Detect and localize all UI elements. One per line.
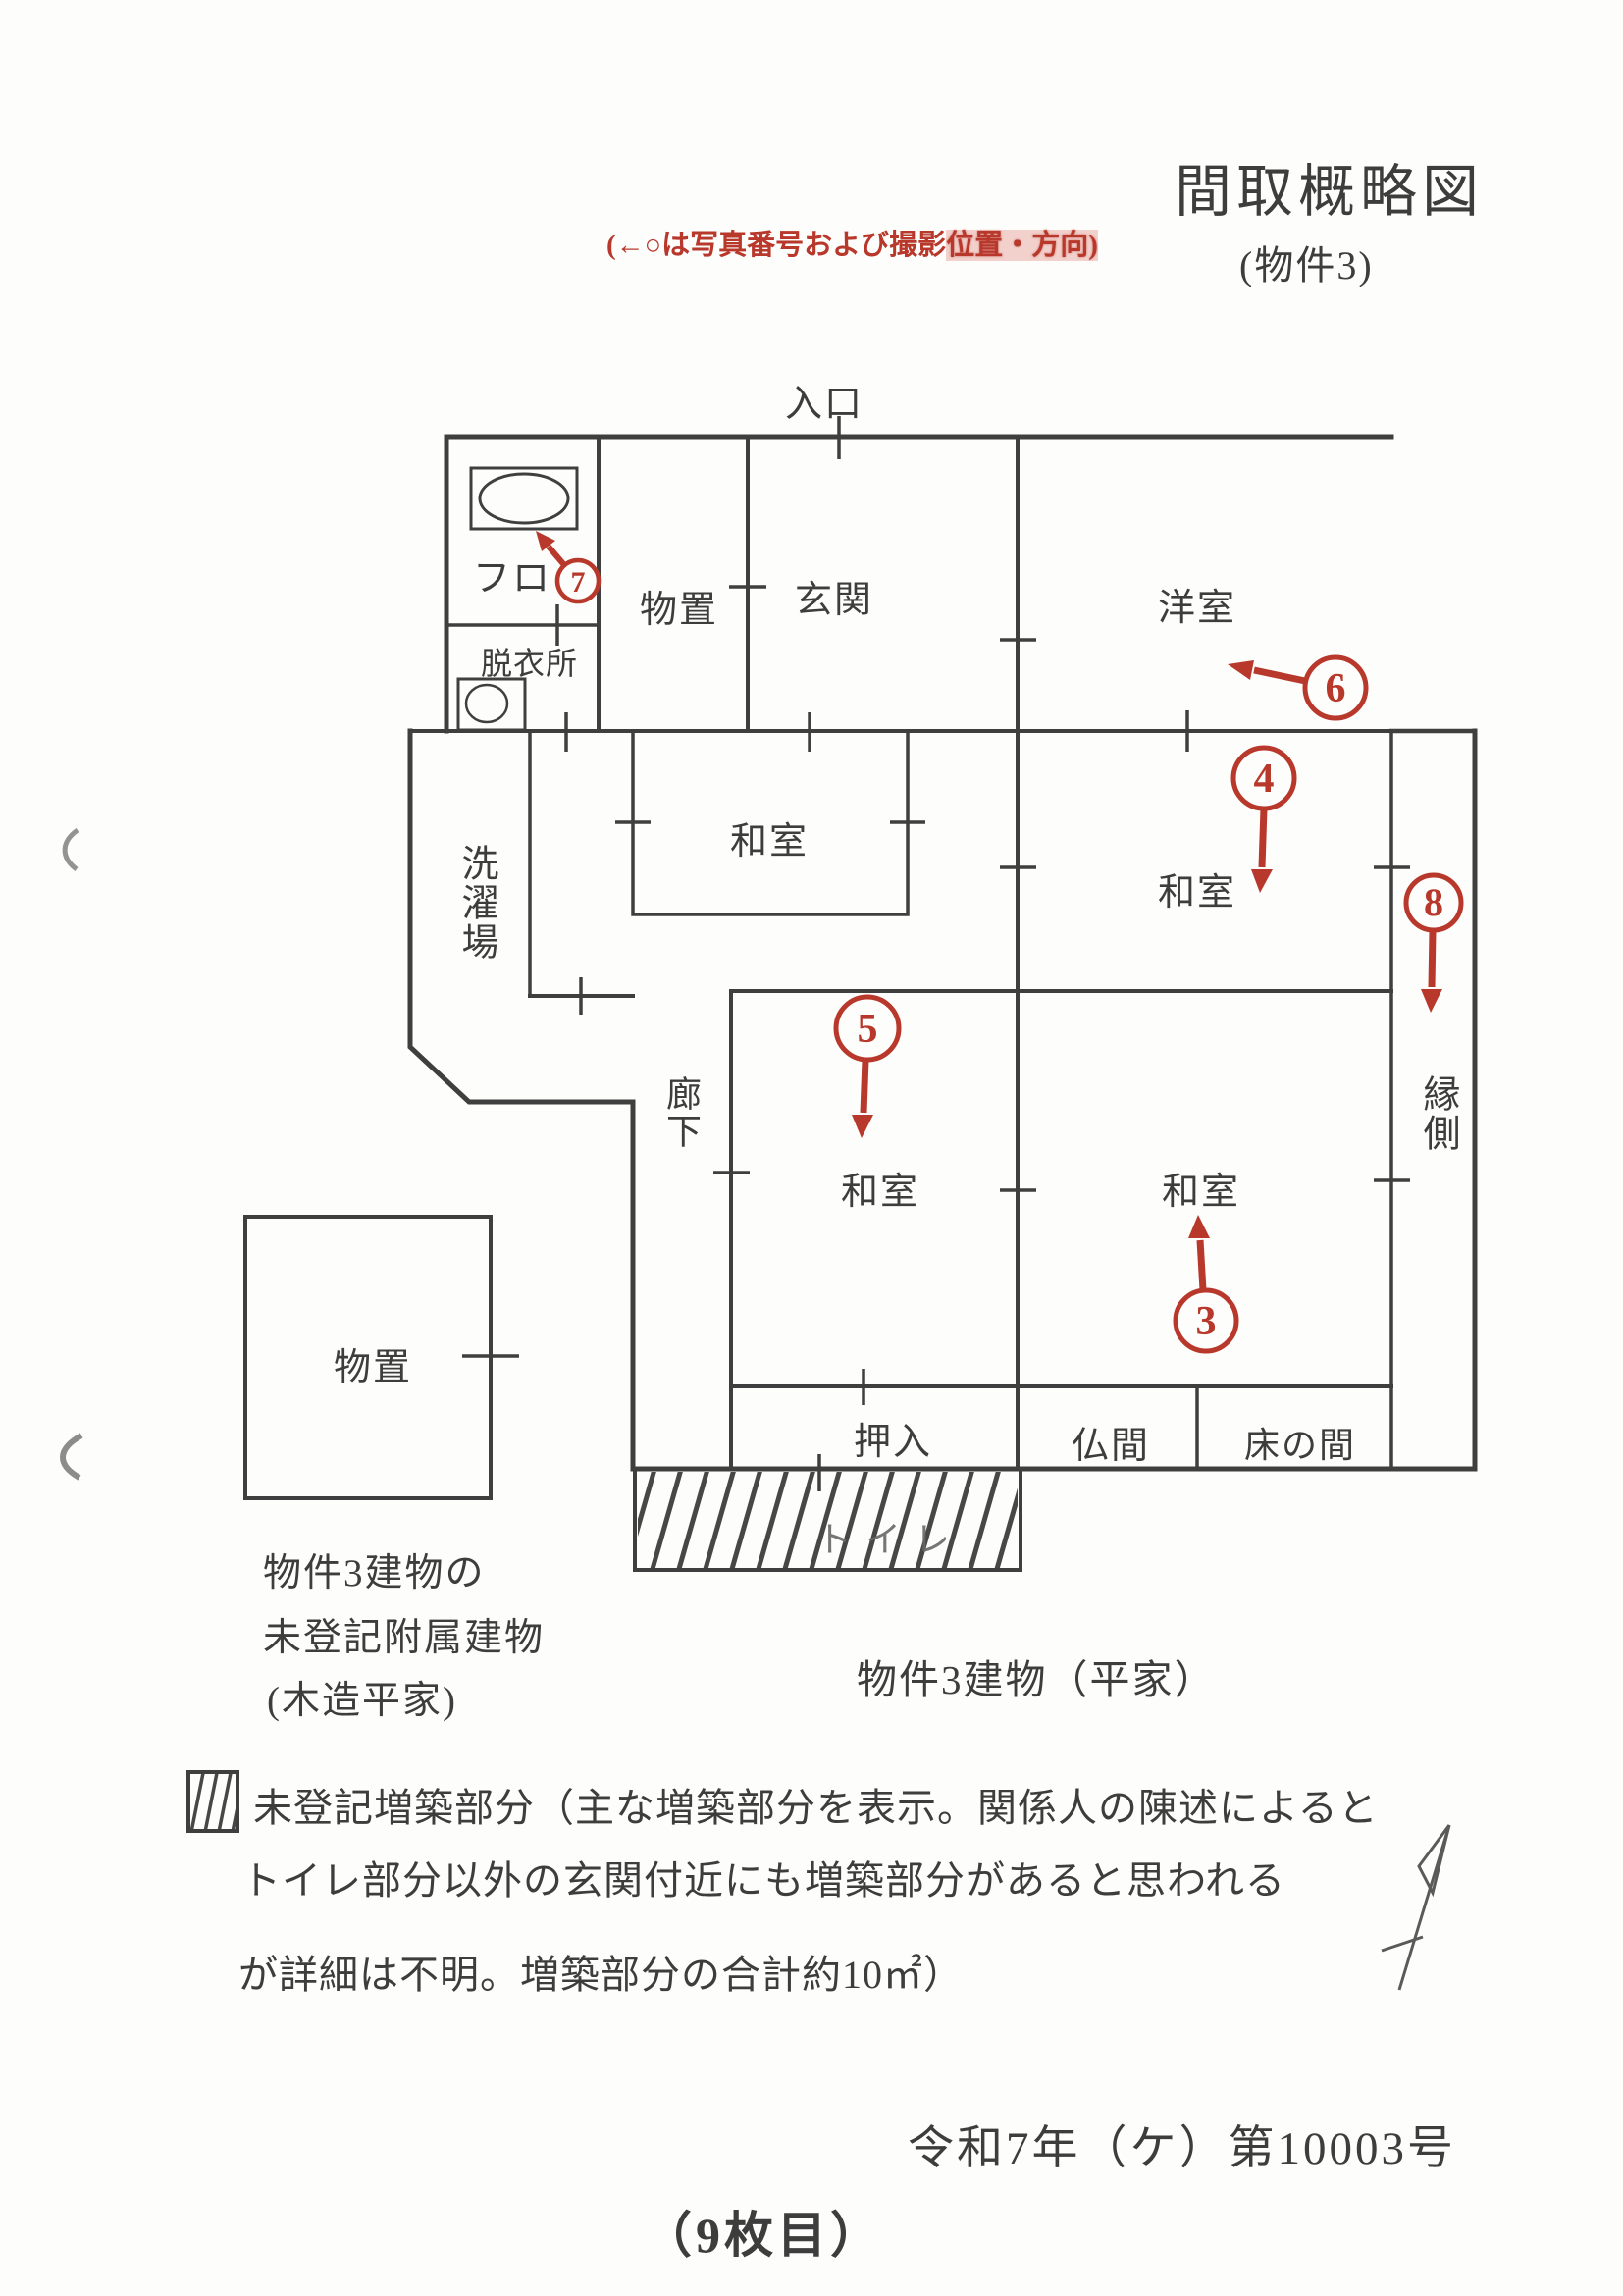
north-arrow-icon <box>1382 1825 1449 1990</box>
label-veranda: 縁側 <box>1411 1074 1465 1153</box>
label-altar-room: 仏間 <box>1072 1415 1150 1469</box>
photo-marker-6-number: 6 <box>1326 666 1346 711</box>
label-tokonoma: 床の間 <box>1244 1417 1356 1468</box>
scan-artifacts <box>63 830 81 1478</box>
legend-hatch-swatch <box>188 1768 245 1837</box>
label-bath: フロ <box>473 548 551 601</box>
annex-caption-line1: 物件3建物の <box>263 1542 486 1597</box>
photo-marker-3-number: 3 <box>1196 1299 1217 1344</box>
case-number: 令和7年（ケ）第10003号 <box>908 2110 1456 2177</box>
scanned-floorplan-page: 7 6 4 8 5 3 (←○は写真番号および撮影位置・方向) 間取概略図 (物… <box>0 0 1623 2296</box>
arrow-down-icon <box>1421 989 1442 1013</box>
washing-machine-icon <box>458 679 525 730</box>
photo-marker-numbers: 7 6 4 8 5 3 <box>571 566 1444 1344</box>
photo-marker-7-number: 7 <box>571 566 586 599</box>
label-western-room: 洋室 <box>1158 577 1236 631</box>
bathtub-icon <box>471 468 577 529</box>
legend-line2: トイレ部分以外の玄関付近にも増築部分があると思われる <box>241 1849 1285 1905</box>
annex-caption-line2: 未登記附属建物 <box>263 1607 545 1662</box>
label-washitsu-east: 和室 <box>1158 861 1236 915</box>
photo-marker-4-number: 4 <box>1254 757 1275 802</box>
annex-caption-line3: (木造平家) <box>267 1670 457 1725</box>
label-washitsu-south: 和室 <box>1162 1161 1240 1215</box>
arrow-left-icon <box>1228 660 1254 680</box>
photo-note-text: (←○は写真番号および撮影 <box>606 230 946 261</box>
label-toilet: トイレ <box>816 1511 964 1562</box>
label-entrance: 入口 <box>785 373 864 427</box>
page-number: （9枚目） <box>643 2196 883 2267</box>
label-storage: 物置 <box>640 579 718 633</box>
label-laundry: 洗濯場 <box>449 844 503 962</box>
label-washitsu-nw: 和室 <box>730 810 809 864</box>
photo-markers <box>536 531 1461 1351</box>
label-dressing-room: 脱衣所 <box>481 639 578 684</box>
main-building-caption: 物件3建物（平家） <box>857 1646 1217 1705</box>
label-genkan: 玄関 <box>795 569 873 623</box>
arrow-down-icon <box>1251 869 1273 893</box>
label-closet: 押入 <box>854 1411 932 1465</box>
legend-line1: 未登記増築部分（主な増築部分を表示。関係人の陳述によると <box>253 1776 1379 1833</box>
photo-marker-5-number: 5 <box>858 1007 878 1052</box>
photo-marker-8-number: 8 <box>1424 880 1443 924</box>
arrow-up-icon <box>1188 1215 1210 1238</box>
photo-note: (←○は写真番号および撮影位置・方向) <box>606 222 1098 263</box>
page-title: 間取概略図 <box>1175 145 1484 228</box>
label-washitsu-center: 和室 <box>841 1161 919 1215</box>
label-corridor: 廊下 <box>655 1075 707 1150</box>
arrow-down-icon <box>852 1115 873 1138</box>
label-annex-storage: 物置 <box>334 1336 412 1390</box>
page-subtitle: (物件3) <box>1239 234 1374 290</box>
legend-line3: が詳細は不明。増築部分の合計約10㎡） <box>238 1943 964 2000</box>
photo-note-emphasis: 位置・方向) <box>946 230 1098 261</box>
door-tick-marks <box>462 416 1410 1491</box>
